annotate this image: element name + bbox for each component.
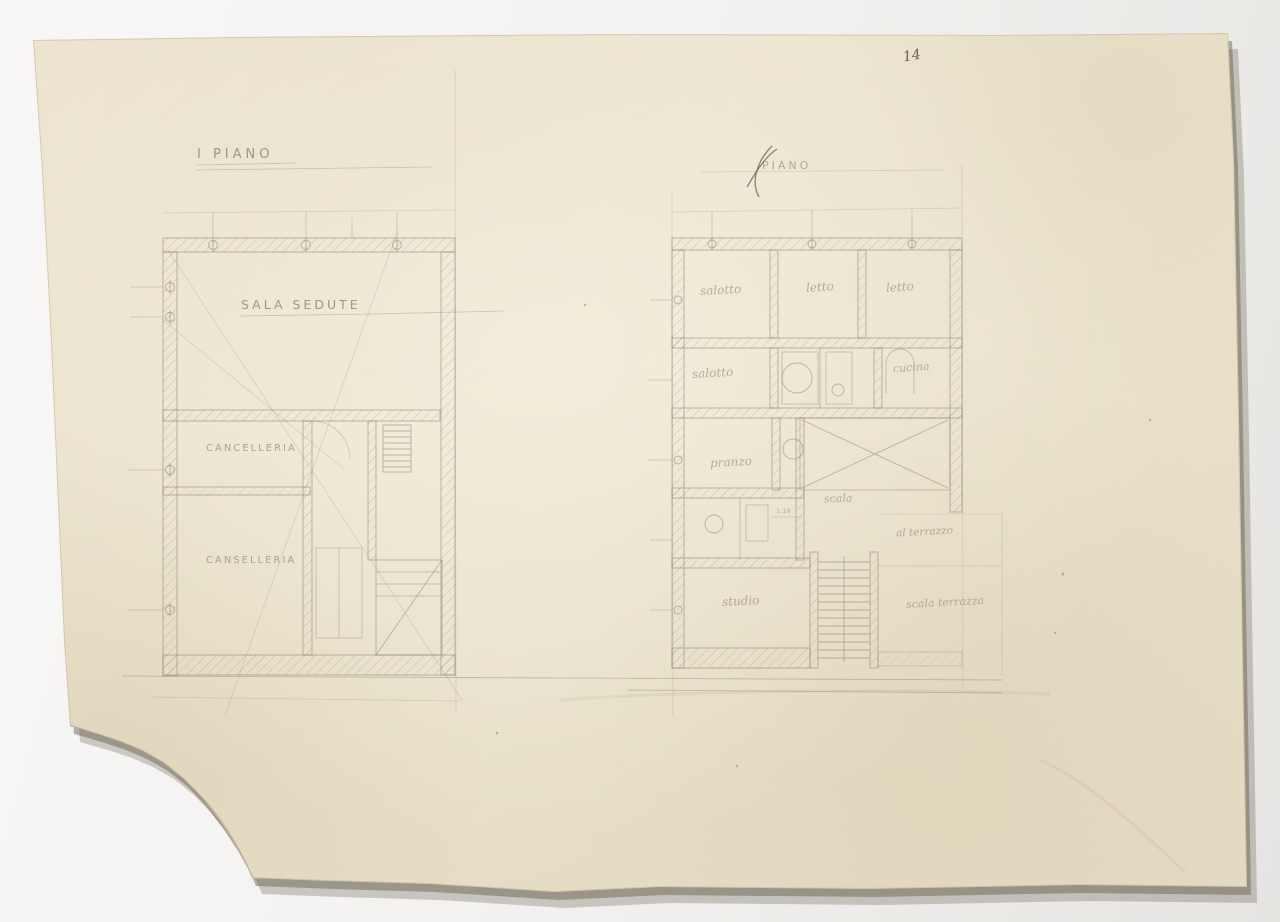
right-plan-title: PIANO xyxy=(762,159,811,172)
room-label-studio: studio xyxy=(722,593,760,609)
room-label-letto-mid: letto xyxy=(806,279,835,295)
right-plan-linework xyxy=(648,146,1002,715)
dimension-label: 1.19 xyxy=(776,507,790,515)
room-label-sala-sedute: SALA SEDUTE xyxy=(241,297,361,312)
left-plan-title: I PIANO xyxy=(197,147,274,162)
paper-creases xyxy=(560,691,1185,872)
room-label-salotto-top: salotto xyxy=(700,282,742,298)
room-label-cucina: cucina xyxy=(893,360,930,376)
room-label-cancelleria-lower: CANSELLERIA xyxy=(206,555,296,566)
torn-edge xyxy=(70,726,252,878)
photo-background: I PIANO SALA SEDUTE CANCELLERIA CANSELLE… xyxy=(0,0,1280,922)
room-label-scala: scala xyxy=(824,492,853,506)
corner-inventory-mark: 14 xyxy=(902,47,922,66)
left-plan-linework xyxy=(128,70,505,715)
room-label-pranzo: pranzo xyxy=(710,454,753,470)
room-label-letto-right: letto xyxy=(886,279,915,295)
drawing-sheet: I PIANO SALA SEDUTE CANCELLERIA CANSELLE… xyxy=(0,0,1280,922)
room-label-salotto-mid: salotto xyxy=(692,365,734,381)
room-label-cancelleria-upper: CANCELLERIA xyxy=(206,443,297,454)
pencil-linework xyxy=(0,0,1280,922)
